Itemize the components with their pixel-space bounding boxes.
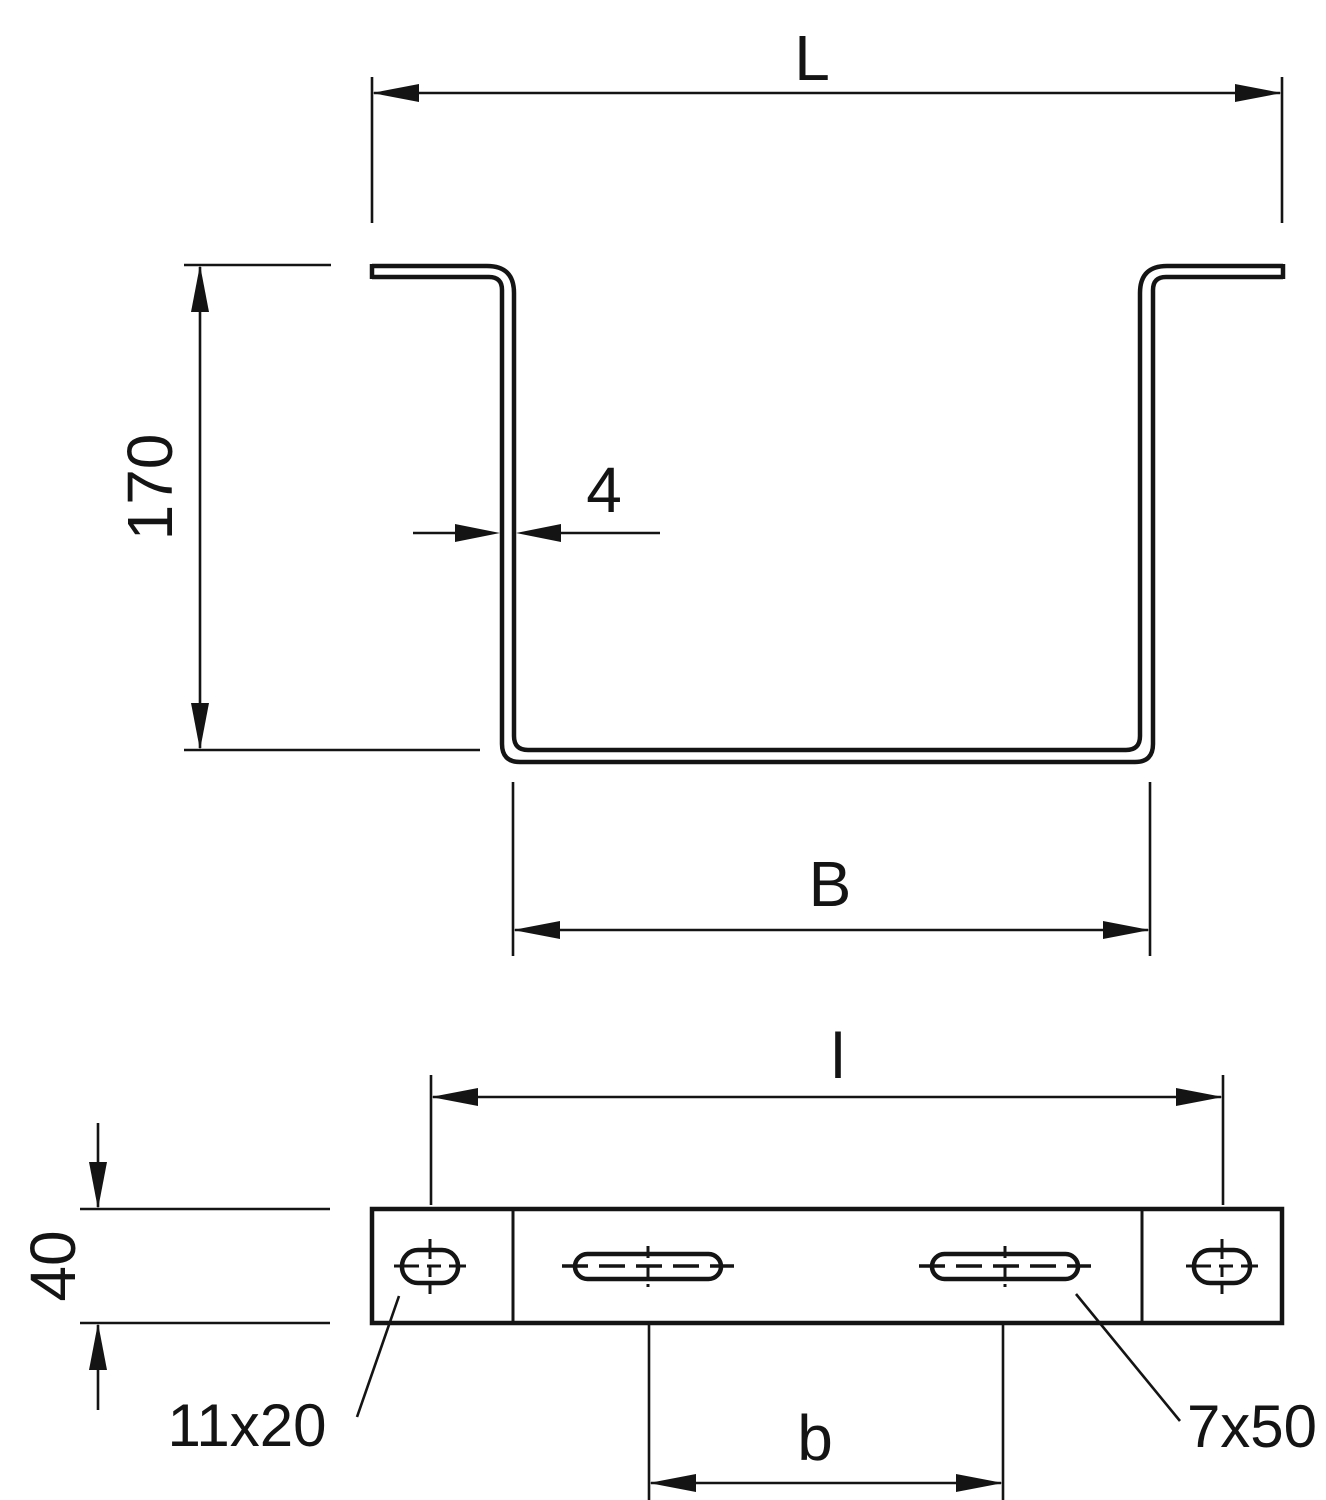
arrowhead-right bbox=[1103, 921, 1150, 939]
arrowhead-left bbox=[431, 1088, 478, 1106]
leader-line bbox=[1076, 1294, 1180, 1421]
slot-left bbox=[562, 1246, 734, 1287]
arrowhead-top bbox=[89, 1162, 107, 1209]
leader-line bbox=[357, 1296, 399, 1417]
dim-40-label: 40 bbox=[17, 1230, 89, 1301]
arrowhead-left bbox=[455, 524, 500, 542]
dimension-L: L bbox=[372, 22, 1282, 223]
slot-right bbox=[919, 1246, 1091, 1287]
dim-L-label: L bbox=[794, 22, 830, 94]
dimension-40: 40 bbox=[17, 1123, 330, 1410]
arrowhead-left bbox=[649, 1474, 696, 1492]
plate-outline bbox=[372, 1209, 1282, 1323]
profile-outline-top-surface bbox=[372, 266, 1283, 750]
end-hole-size-label: 11x20 bbox=[167, 1392, 326, 1459]
dimension-B: B bbox=[513, 782, 1150, 956]
arrowhead-bottom bbox=[89, 1323, 107, 1370]
arrowhead-right bbox=[956, 1474, 1003, 1492]
profile-outline-bottom-surface bbox=[372, 277, 1283, 762]
arrowhead-right bbox=[1235, 84, 1282, 102]
dim-4-label: 4 bbox=[586, 454, 622, 526]
dim-170-label: 170 bbox=[114, 434, 186, 541]
dim-B-label: B bbox=[809, 848, 852, 920]
dim-l-label: l bbox=[831, 1020, 845, 1092]
technical-drawing: L 170 4 bbox=[0, 0, 1326, 1500]
end-hole-left bbox=[394, 1239, 466, 1294]
dim-b-label: b bbox=[797, 1402, 833, 1474]
arrowhead-right bbox=[516, 524, 561, 542]
slot-size-label: 7x50 bbox=[1187, 1393, 1317, 1460]
profile-cross-section-view: L 170 4 bbox=[114, 22, 1283, 956]
dimension-b: b bbox=[649, 1325, 1003, 1500]
end-hole-right bbox=[1186, 1239, 1258, 1294]
arrowhead-right bbox=[1176, 1088, 1223, 1106]
arrowhead-top bbox=[191, 265, 209, 312]
callout-11x20: 11x20 bbox=[167, 1296, 399, 1459]
arrowhead-left bbox=[513, 921, 560, 939]
dimension-l: l bbox=[431, 1020, 1223, 1205]
dimension-4: 4 bbox=[413, 454, 660, 542]
arrowhead-bottom bbox=[191, 703, 209, 750]
arrowhead-left bbox=[372, 84, 419, 102]
dimension-170: 170 bbox=[114, 265, 480, 750]
plate-bottom-view: l 40 b bbox=[17, 1020, 1317, 1500]
drawing-canvas: L 170 4 bbox=[0, 0, 1326, 1500]
